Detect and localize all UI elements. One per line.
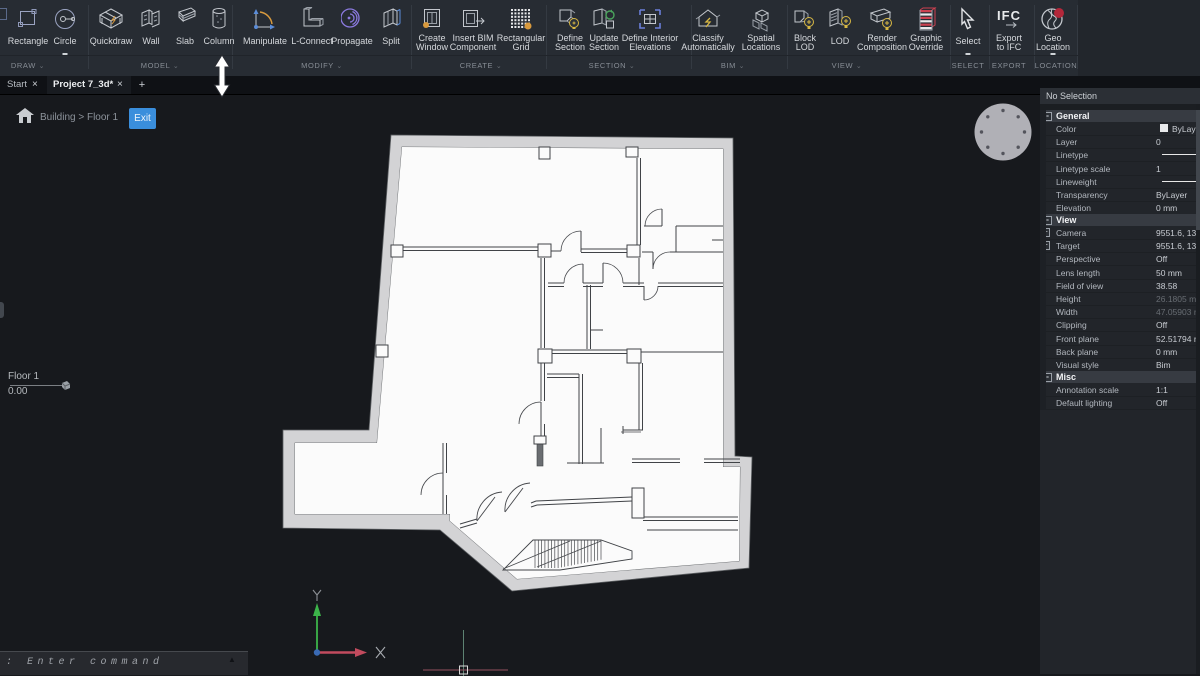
svg-text:IFC: IFC xyxy=(997,8,1021,23)
